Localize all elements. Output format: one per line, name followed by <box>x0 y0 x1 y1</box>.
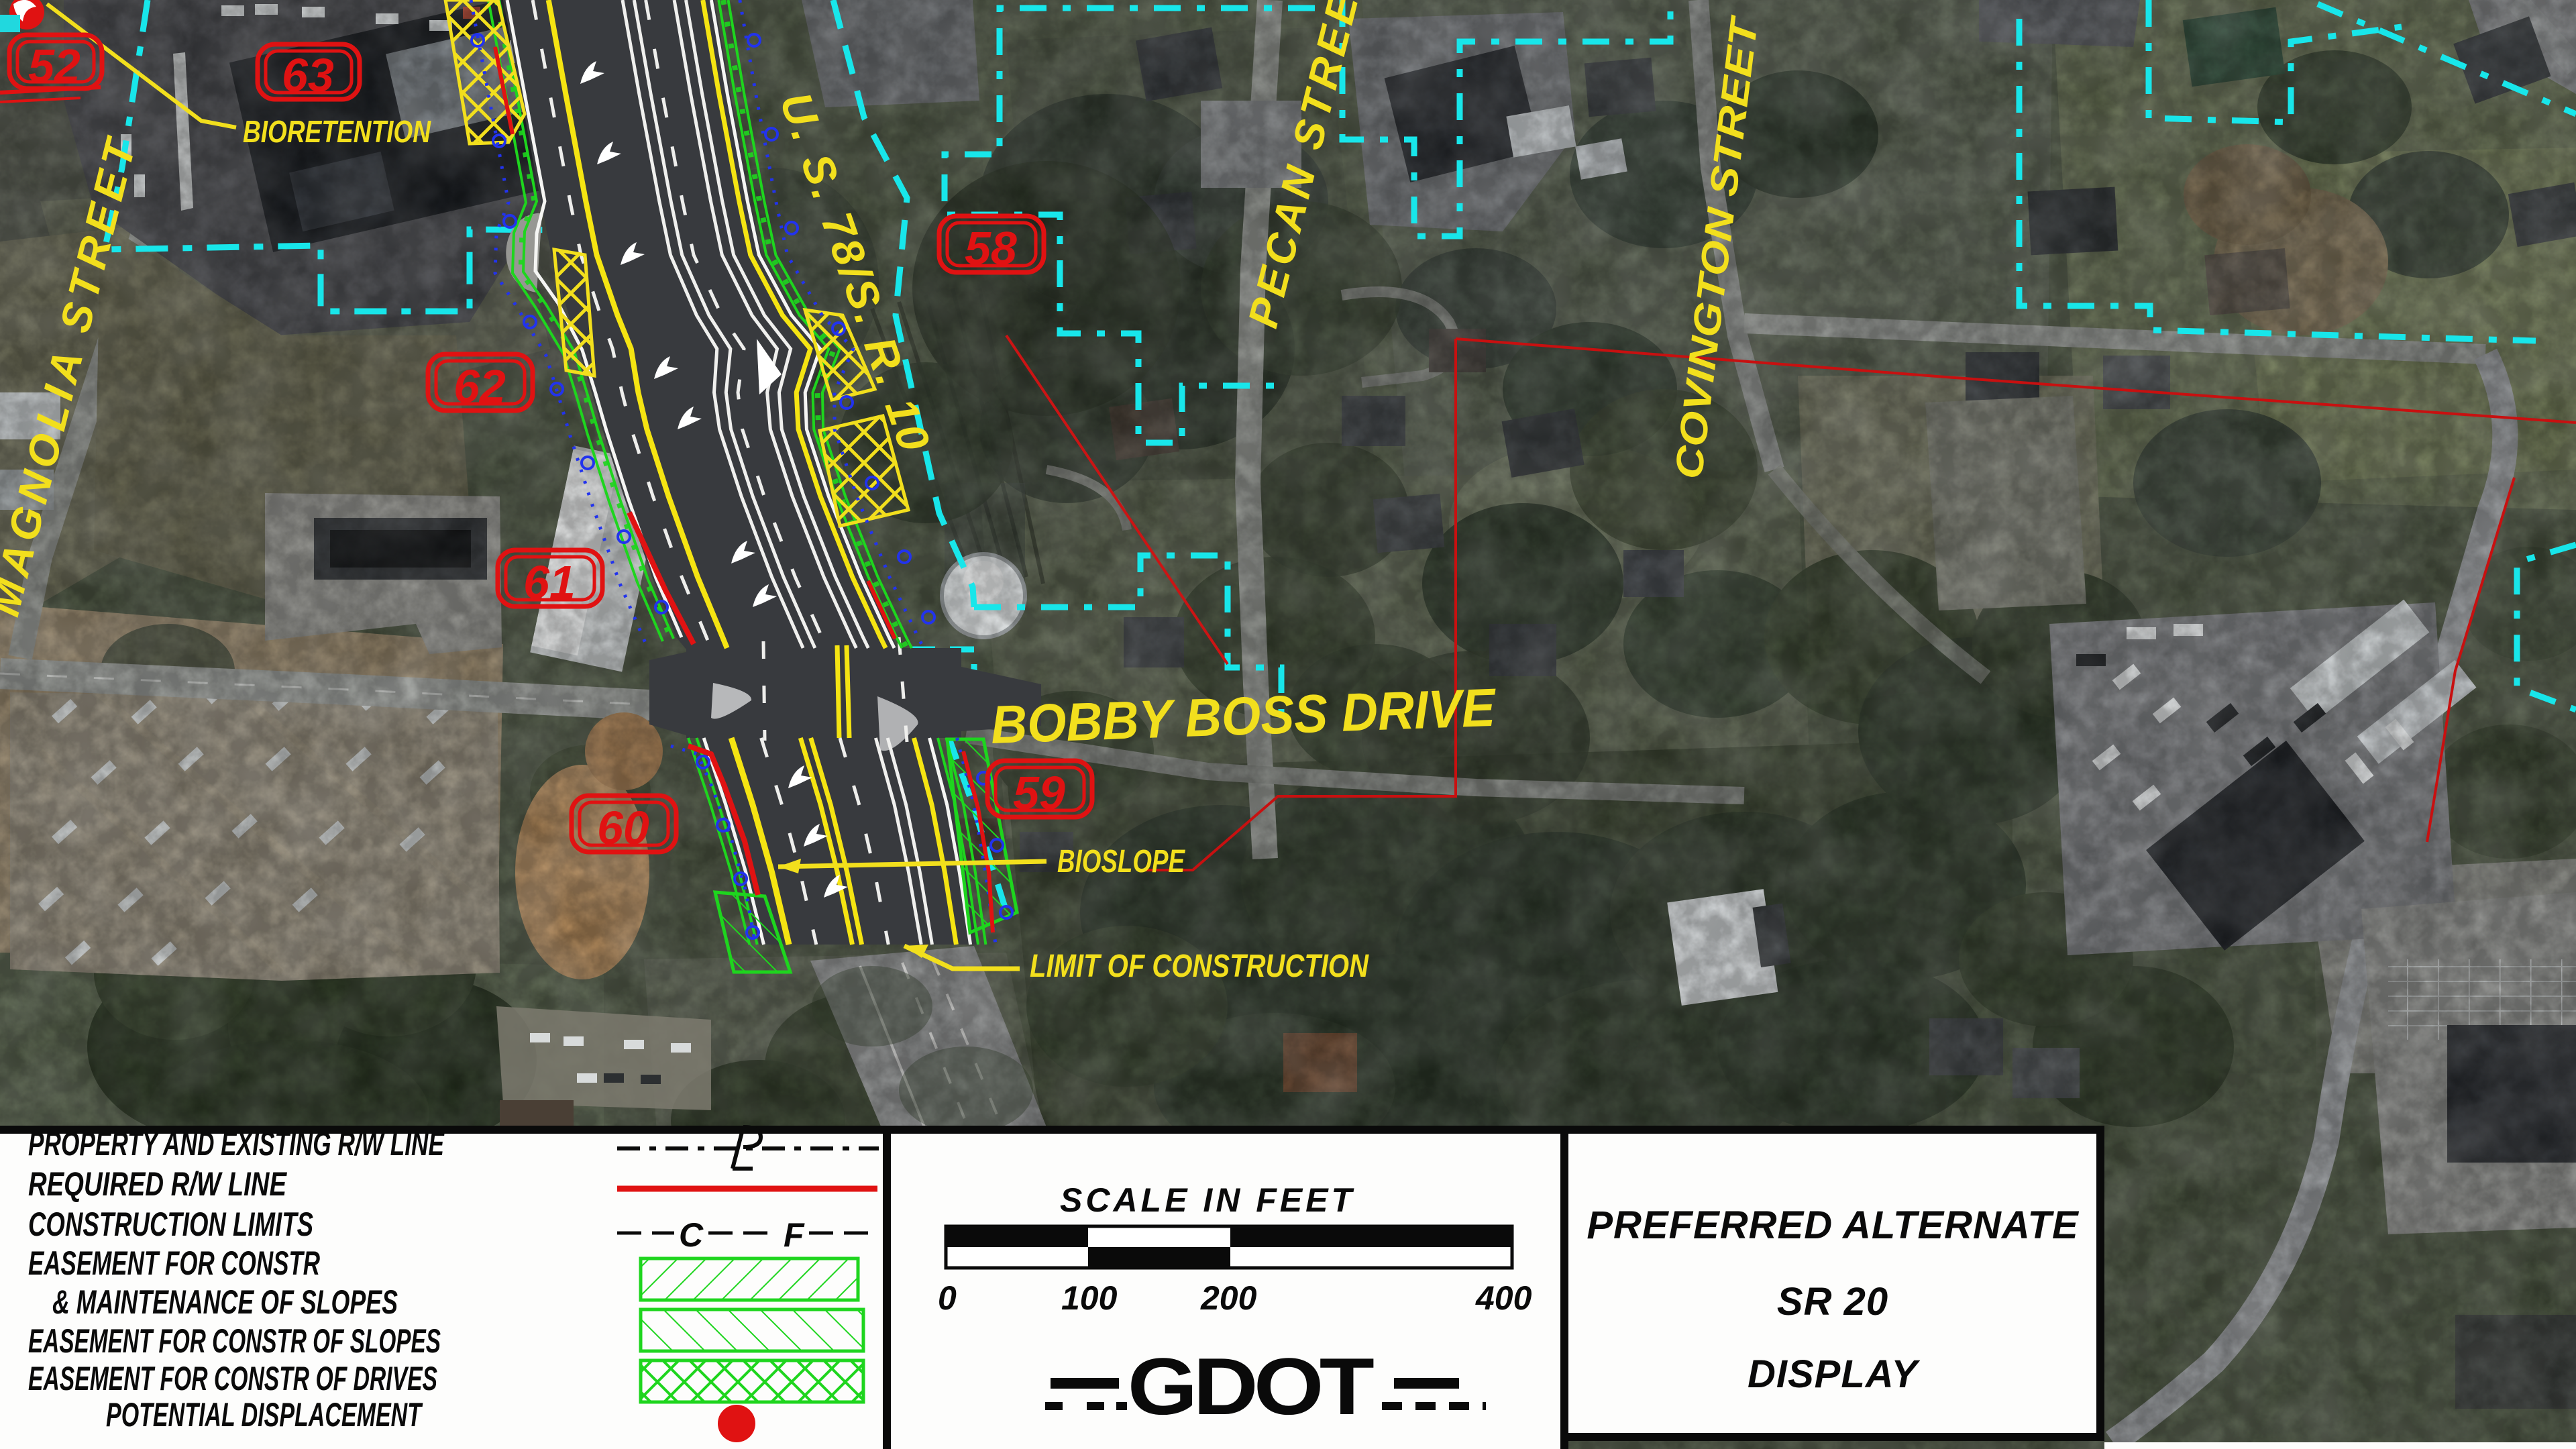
svg-text:52: 52 <box>28 40 80 92</box>
svg-text:100: 100 <box>1061 1279 1118 1317</box>
svg-text:EASEMENT FOR CONSTR OF DRIVES: EASEMENT FOR CONSTR OF DRIVES <box>28 1360 437 1397</box>
svg-text:63: 63 <box>282 49 334 101</box>
svg-text:POTENTIAL DISPLACEMENT: POTENTIAL DISPLACEMENT <box>106 1396 423 1434</box>
svg-text:REQUIRED R/W LINE: REQUIRED R/W LINE <box>28 1165 287 1203</box>
svg-text:61: 61 <box>523 556 576 608</box>
svg-text:BIOSLOPE: BIOSLOPE <box>1057 844 1186 879</box>
svg-text:DISPLAY: DISPLAY <box>1748 1352 1921 1396</box>
svg-text:SCALE IN FEET: SCALE IN FEET <box>1060 1181 1355 1219</box>
svg-text:60: 60 <box>597 802 649 854</box>
svg-text:GDOT: GDOT <box>1128 1342 1374 1432</box>
svg-text:PROPERTY AND EXISTING R/W LINE: PROPERTY AND EXISTING R/W LINE <box>28 1125 445 1163</box>
svg-text:SR 20: SR 20 <box>1777 1280 1888 1324</box>
svg-text:0: 0 <box>938 1279 957 1317</box>
svg-text:CONSTRUCTION LIMITS: CONSTRUCTION LIMITS <box>28 1205 313 1243</box>
svg-text:& MAINTENANCE OF SLOPES: & MAINTENANCE OF SLOPES <box>52 1283 398 1321</box>
svg-text:EASEMENT FOR CONSTR: EASEMENT FOR CONSTR <box>28 1244 320 1282</box>
svg-text:200: 200 <box>1200 1279 1257 1317</box>
svg-text:PREFERRED ALTERNATE: PREFERRED ALTERNATE <box>1587 1203 2080 1247</box>
svg-text:F: F <box>784 1216 805 1254</box>
svg-text:LIMIT OF CONSTRUCTION: LIMIT OF CONSTRUCTION <box>1030 949 1369 984</box>
svg-text:62: 62 <box>453 360 506 413</box>
svg-text:59: 59 <box>1013 767 1065 819</box>
svg-text:C: C <box>679 1216 704 1254</box>
svg-text:EASEMENT FOR CONSTR OF SLOPES: EASEMENT FOR CONSTR OF SLOPES <box>28 1322 441 1360</box>
svg-text:BIORETENTION: BIORETENTION <box>243 114 431 149</box>
svg-text:400: 400 <box>1475 1279 1532 1317</box>
svg-text:58: 58 <box>965 222 1017 274</box>
